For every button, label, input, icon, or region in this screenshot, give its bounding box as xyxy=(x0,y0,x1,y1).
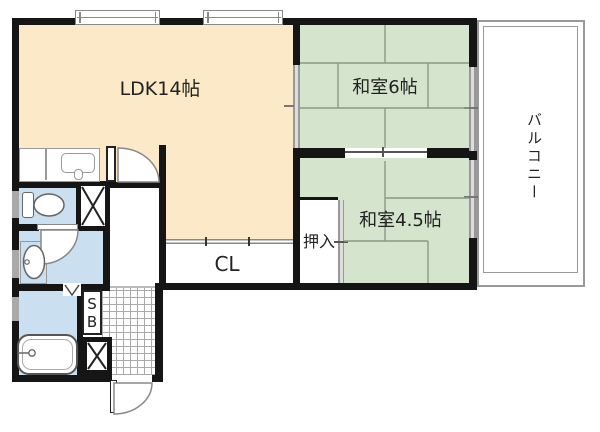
toilet-tank xyxy=(22,192,34,218)
entrance-door-leaf xyxy=(110,380,117,413)
wall-hall-cl xyxy=(159,145,166,290)
floor-plan: S B xyxy=(0,0,600,432)
wall-wing-east xyxy=(155,283,163,382)
window-washroom-icon xyxy=(12,250,19,278)
tick-cl-2 xyxy=(248,237,250,246)
entrance-door-arc xyxy=(114,383,152,414)
window-top-1-icon xyxy=(75,10,160,25)
tick-slide-6-45 xyxy=(382,147,384,157)
slide-door-6-45 xyxy=(345,151,427,153)
label-oshiire: 押入 xyxy=(295,233,343,251)
oshiire-top-line xyxy=(300,197,338,200)
room-ldk-lower xyxy=(166,182,293,239)
tick-fusuma-ldk xyxy=(284,105,294,107)
tick-cl-1 xyxy=(205,237,207,246)
label-balcony: バルコニー xyxy=(516,101,542,213)
label-closet-cl: CL xyxy=(197,253,257,276)
window-top-2-icon xyxy=(203,10,283,25)
fusuma-ldk-6-icon xyxy=(293,65,300,148)
entrance-step-line xyxy=(110,286,159,288)
shoe-box-label-s: S xyxy=(87,295,97,313)
shoe-box-label-b: B xyxy=(87,313,97,331)
wall-bottom-main xyxy=(155,283,477,290)
window-bath-icon xyxy=(12,297,19,321)
wall-wing-bottom xyxy=(12,375,112,382)
bath-door-gap xyxy=(63,283,81,296)
kitchen-faucet-icon xyxy=(74,169,83,180)
kitchen-counter xyxy=(19,148,100,182)
slide-door-cl-icon xyxy=(166,239,293,244)
duct-shaft-box-2 xyxy=(82,337,112,375)
duct-shaft-box-1 xyxy=(76,181,110,231)
wall-washroom-bottom-1 xyxy=(12,284,65,291)
bathtub-inner xyxy=(22,339,73,370)
shoe-box: S B xyxy=(82,290,102,335)
label-japanese-room-6: 和室6帖 xyxy=(315,78,455,99)
tick-window-45 xyxy=(464,196,478,198)
washbasin-counter xyxy=(20,241,47,284)
washroom-door-leaf xyxy=(37,224,78,230)
label-japanese-room-4-5: 和室4.5帖 xyxy=(328,211,473,232)
window-toilet-icon xyxy=(12,191,19,218)
wall-toilet-bottom xyxy=(12,224,39,231)
tick-window-6 xyxy=(464,107,478,109)
ldk-door-leaf xyxy=(106,146,116,182)
kitchen-counter-divider xyxy=(45,149,47,180)
label-ldk: LDK14帖 xyxy=(90,79,230,101)
window-6-balcony-icon xyxy=(469,67,477,151)
wall-6-45-west xyxy=(293,148,345,158)
